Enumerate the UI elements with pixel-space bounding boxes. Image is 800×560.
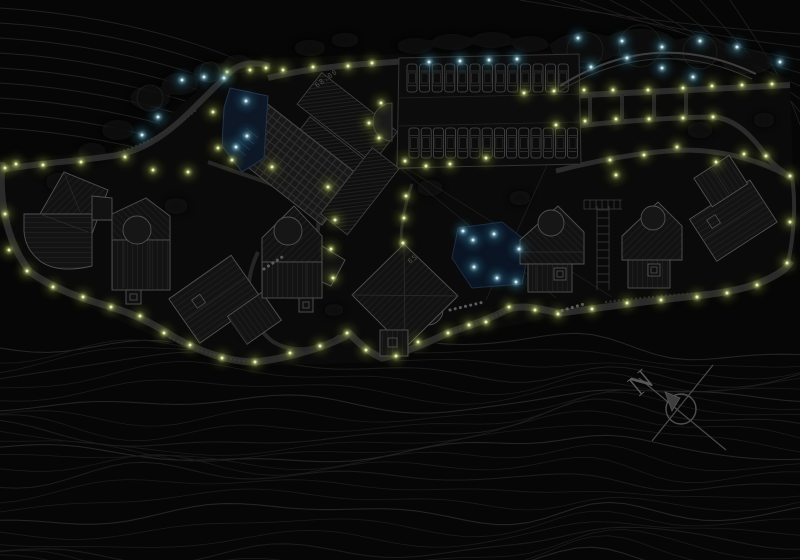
light-dot [346,332,349,335]
house-footprint-2 [112,198,170,304]
light-dot [577,37,580,40]
contour-line [0,362,800,395]
light-dot [26,270,29,273]
light-dot [518,248,521,251]
light-dot [265,67,268,70]
light-dot [82,296,85,299]
light-dot [141,134,144,137]
light-dot [347,65,350,68]
light-dot [217,147,220,150]
light-dot [485,157,488,160]
light-dot [4,167,7,170]
light-dot [271,166,274,169]
light-dot [157,116,160,119]
contour-line [0,547,800,560]
light-dot [405,195,408,198]
contour-line [0,511,800,539]
light-dot [15,163,18,166]
site-plan-canvas: 68.0065 N [0,0,800,560]
light-dot [765,155,768,158]
light-dot [612,89,615,92]
contour-line [0,390,800,426]
light-dot [523,92,526,95]
light-dot [417,341,420,344]
light-dot [643,154,646,157]
light-dot [786,262,789,265]
contour-lines-bottom [0,333,800,560]
light-dot [181,79,184,82]
light-dot [715,161,718,164]
light-dot [368,122,371,125]
light-dot [235,146,238,149]
light-dot [557,313,560,316]
light-dot [756,284,759,287]
light-dot [459,60,462,63]
light-dot [282,69,285,72]
light-dot [516,58,519,61]
compass-north-label: N [622,363,660,402]
light-dot [660,299,663,302]
light-dot [139,315,142,318]
light-dot [771,83,774,86]
light-dot [488,59,491,62]
light-dot [726,292,729,295]
light-dot [712,116,715,119]
light-dot [534,309,537,312]
contour-line [520,0,800,34]
light-dot [647,89,650,92]
light-dot [330,248,333,251]
contour-line [0,489,800,512]
light-dot [212,111,215,114]
light-dot [473,266,476,269]
light-dot [682,117,685,120]
light-dot [555,124,558,127]
light-dot [231,159,234,162]
light-dot [615,174,618,177]
light-dot [8,249,11,252]
light-dot [403,217,406,220]
light-dot [223,77,226,80]
light-dot [468,324,471,327]
light-dot [692,76,695,79]
light-dot [289,352,292,355]
light-dot [626,302,629,305]
light-dot [378,137,381,140]
light-dot [380,102,383,105]
light-dot [741,84,744,87]
light-dot [246,135,249,138]
light-dot [428,61,431,64]
light-dot [447,332,450,335]
light-dot [203,76,206,79]
light-dot [327,186,330,189]
light-dot [648,118,651,121]
contour-line [0,462,800,491]
light-dot [319,345,322,348]
light-dot [609,159,612,162]
light-dot [371,62,374,65]
light-dot [553,90,556,93]
light-dot [736,46,739,49]
light-dot [661,67,664,70]
light-dot [395,355,398,358]
contour-line [0,455,800,483]
light-dot [583,89,586,92]
light-dot [615,118,618,121]
light-dot [621,40,624,43]
light-dot [312,66,315,69]
contour-line [0,530,800,560]
light-dot [425,165,428,168]
light-dot [743,153,746,156]
light-dot [711,85,714,88]
light-dot [152,169,155,172]
light-dot [245,100,248,103]
light-dot [584,120,587,123]
light-dot [626,57,629,60]
light-dot [696,296,699,299]
light-dot [189,344,192,347]
light-dot [591,308,594,311]
site-plan-drawing: 68.0065 N [0,0,800,560]
light-dot [365,349,368,352]
contour-line [0,536,800,560]
light-dot [676,146,679,149]
light-dot [249,69,252,72]
light-dot [472,239,475,242]
light-dot [496,277,499,280]
light-dot [449,163,452,166]
light-dot [187,171,190,174]
light-dot [334,219,337,222]
light-dot [332,277,335,280]
light-dot [485,321,488,324]
light-dot [110,306,113,309]
light-dot [508,306,511,309]
light-dot [163,332,166,335]
light-dot [699,40,702,43]
light-dot [404,160,407,163]
light-dot [80,161,83,164]
light-dot [661,46,664,49]
light-dot [789,221,792,224]
contour-line [0,502,800,524]
light-dot [682,87,685,90]
light-dot [493,233,496,236]
light-dot [515,281,518,284]
light-dot [42,164,45,167]
light-dot [124,156,127,159]
light-dot [254,361,257,364]
contour-line [0,380,800,405]
light-dot [590,66,593,69]
light-dot [462,230,465,233]
light-dot [52,286,55,289]
light-dot [402,242,405,245]
light-dot [4,213,7,216]
light-dot [779,61,782,64]
contour-line [0,392,800,441]
light-dot [789,175,792,178]
light-dot [221,357,224,360]
